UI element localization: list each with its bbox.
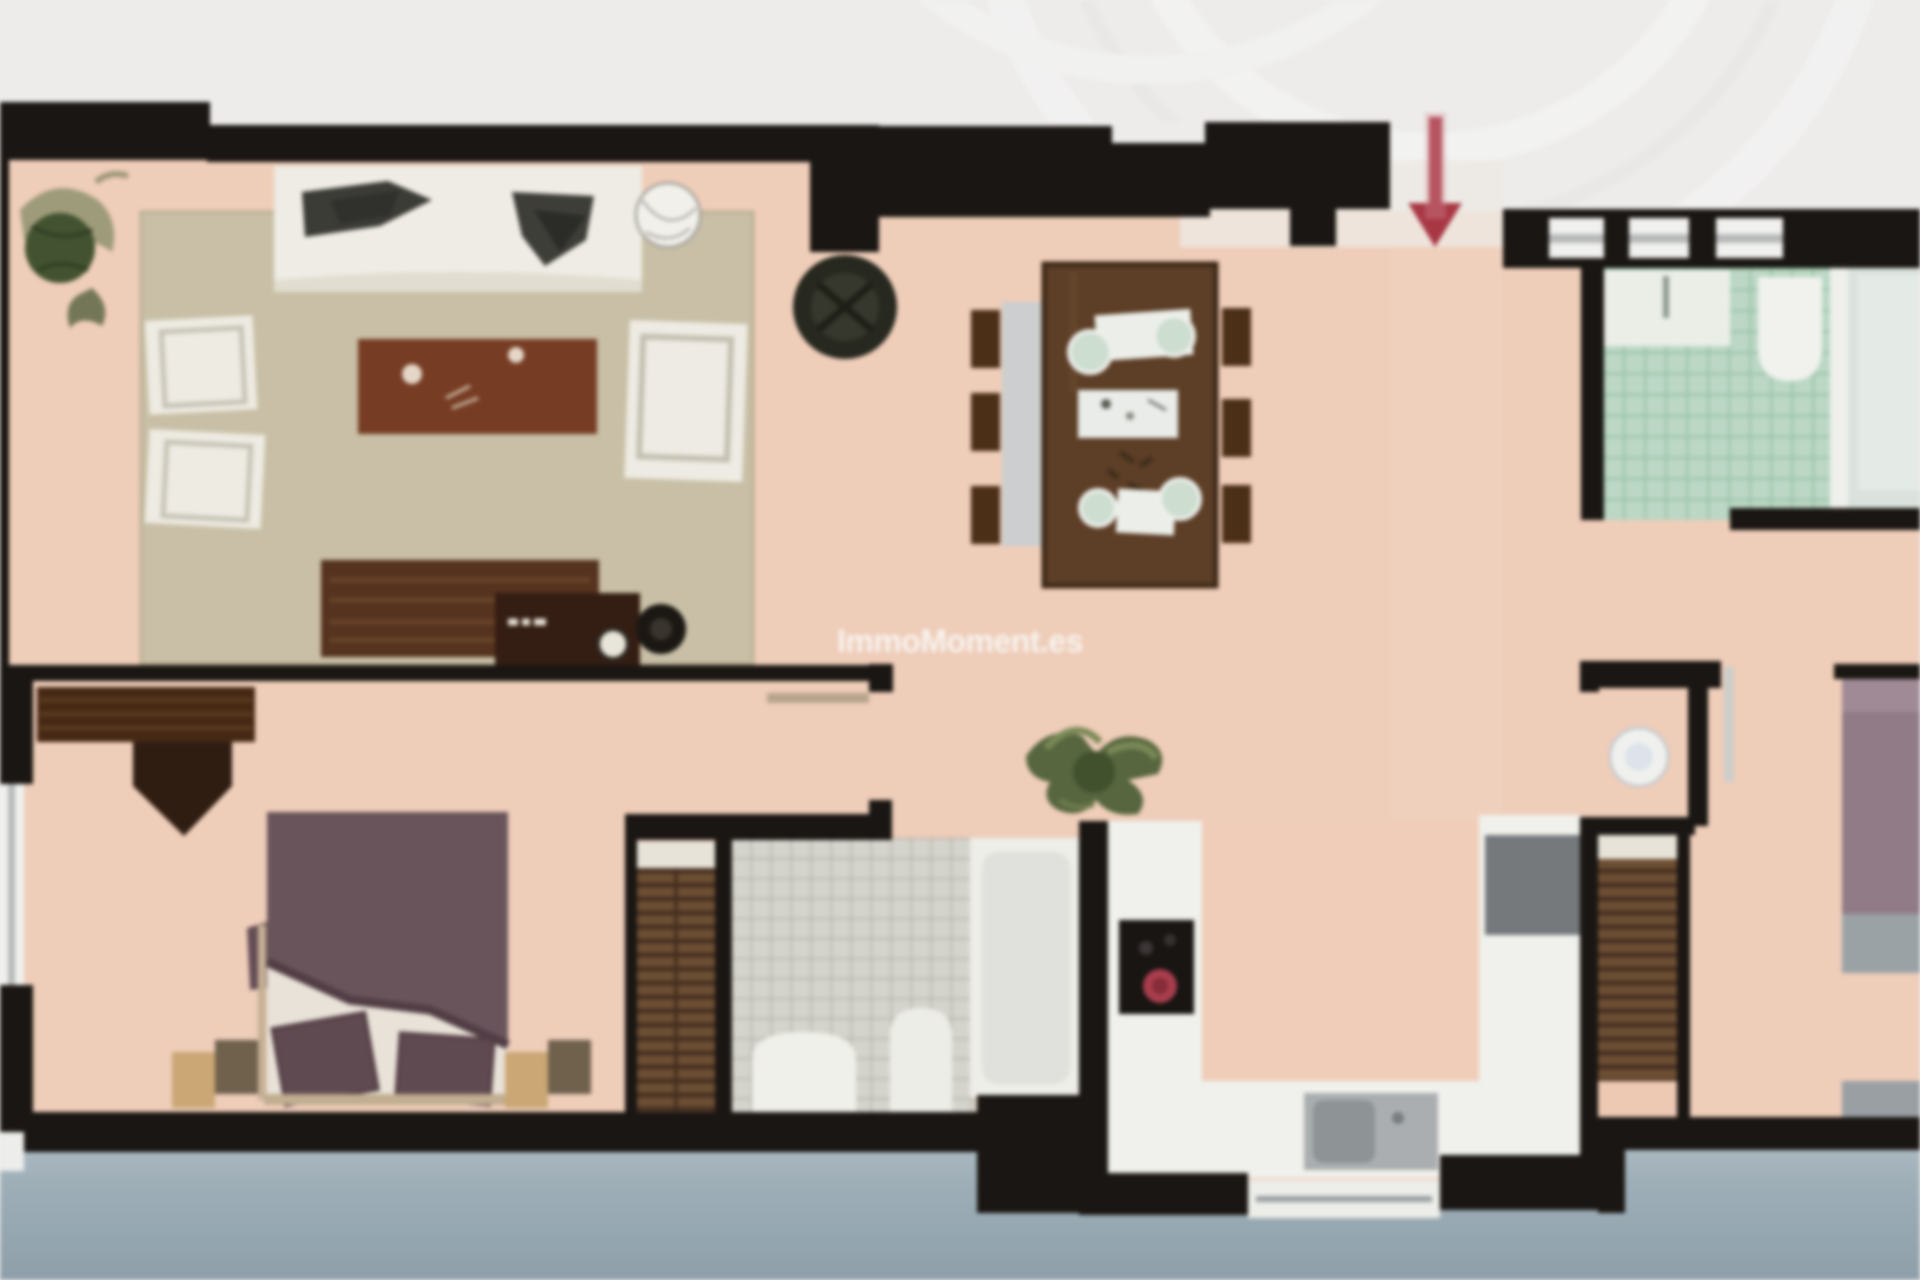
svg-text:ImmoMoment.es: ImmoMoment.es [837, 623, 1083, 659]
